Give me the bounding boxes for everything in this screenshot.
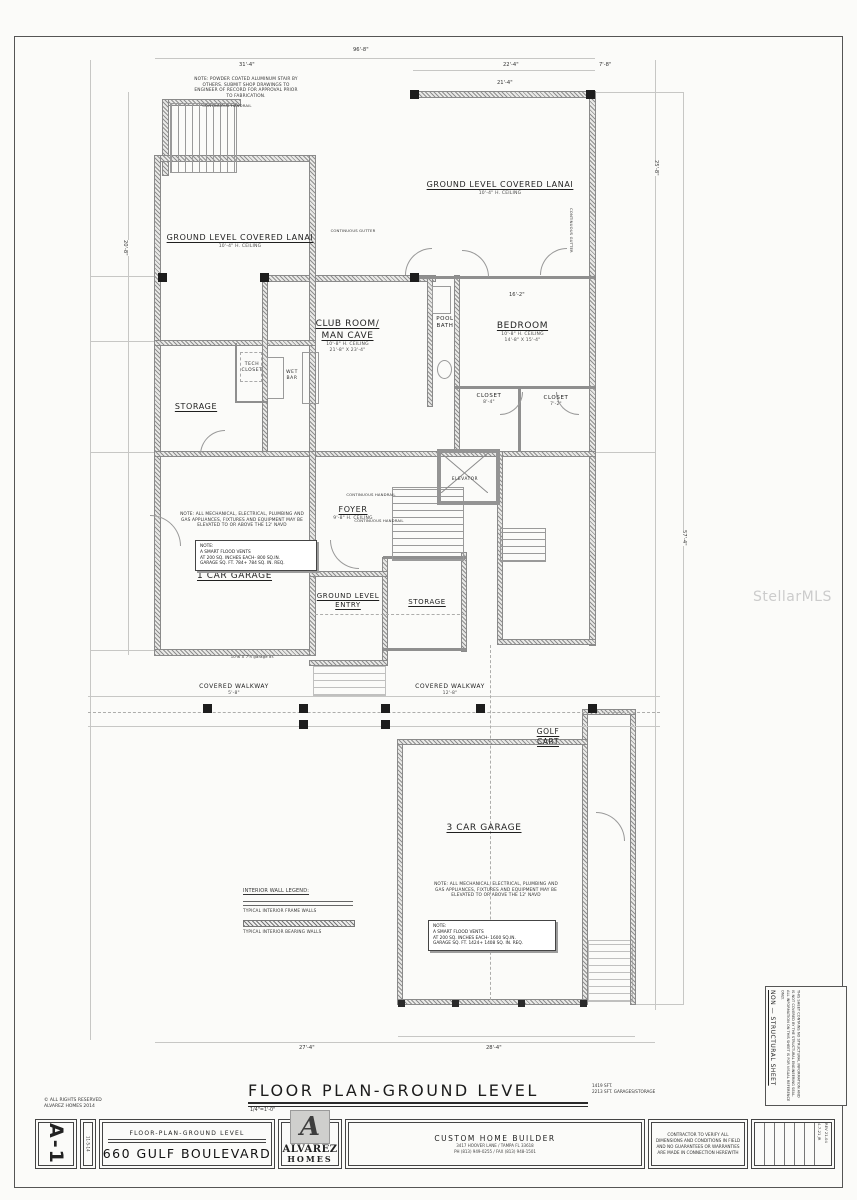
alvarez-logo: A (290, 1110, 330, 1144)
frame-wall-swatch (243, 901, 353, 906)
dimension-label: 31'-4" (238, 62, 256, 68)
non-structural-note-box: NON — STRUCTURAL SHEET THIS SHEET CONTAI… (765, 986, 847, 1106)
copyright-note: © ALL RIGHTS RESERVED ALVAREZ HOMES 2014 (44, 1098, 102, 1111)
dim-line (683, 92, 684, 1005)
dimension-label: 16'-2" (508, 292, 526, 298)
stair-treads (170, 103, 237, 173)
wall-segment (237, 401, 267, 403)
room-closet-1: CLOSET 8'-4" (465, 393, 513, 406)
room-storage-mid: STORAGE (398, 598, 456, 607)
dim-line (155, 1042, 655, 1043)
garage-door-post (518, 1000, 525, 1007)
room-bedroom: BEDROOM 10'-8" H. CEILING 14'-8" X 15'-4… (470, 320, 575, 344)
logo-cell: A ALVAREZ HOMES (278, 1119, 342, 1169)
dim-line (128, 92, 129, 655)
sheet-title: FLOOR-PLAN-GROUND LEVEL (129, 1128, 244, 1139)
column-post (381, 720, 390, 729)
wall-segment (583, 710, 587, 1004)
dimension-label: 27'-4" (298, 1045, 316, 1051)
dimension-label: 28'-4" (485, 1045, 503, 1051)
room-ground-level-entry: GROUND LEVEL ENTRY (314, 592, 382, 611)
column-post (476, 704, 485, 713)
wall-segment (310, 156, 315, 456)
date-cell: 11-5-14 (80, 1119, 96, 1169)
handrail-label: CONTINUOUS HANDRAIL (348, 519, 410, 524)
plan-scale: 1/4"=1'-0" (250, 1108, 275, 1113)
sink-fixture (432, 286, 451, 314)
stair-note: NOTE: POWDER COATED ALUMINUM STAIR BY OT… (192, 77, 300, 99)
walkway-dashed-line (88, 712, 660, 713)
garage-door-post (398, 1000, 405, 1007)
non-structural-body: THIS SHEET CONTAINS NO STRUCTURAL INFORM… (779, 990, 801, 1102)
elevator-x-mark (441, 453, 488, 493)
dim-line (90, 650, 155, 651)
garage-door-label: 10'w X 7'h garage dr. (205, 655, 300, 660)
column-post (410, 90, 419, 99)
dim-line (595, 92, 683, 93)
room-covered-walkway-right: COVERED WALKWAY 12'-8" (394, 683, 506, 697)
handrail-label: CONTINUOUS HANDRAIL (196, 104, 258, 109)
plan-area-note: 1419 SFT. 2213 SFT. GARAGES/STORAGE (592, 1083, 655, 1095)
room-elevator: ELEVATOR (440, 476, 490, 482)
dimension-label: 22'-4" (502, 62, 520, 68)
sheet-number-cell: A-1 (35, 1119, 77, 1169)
dim-line (655, 60, 656, 1010)
column-post (588, 704, 597, 713)
non-structural-title: NON — STRUCTURAL SHEET (769, 990, 776, 1102)
wall-segment (498, 640, 595, 644)
stellar-mls-watermark: StellarMLS (753, 589, 832, 605)
column-post (381, 704, 390, 713)
dim-line (155, 58, 595, 59)
revision-entry: 4-7-21 JR (817, 1123, 822, 1165)
column-post (299, 704, 308, 713)
gutter-label: CONTINUOUS GUTTER (318, 229, 388, 234)
wall-segment (413, 92, 595, 97)
title-rule (248, 1102, 588, 1104)
wall-segment (455, 386, 595, 389)
toilet-fixture (437, 360, 452, 379)
dim-line (90, 341, 155, 342)
wall-segment (398, 1000, 587, 1004)
dimension-label: 20'-8" (121, 240, 129, 256)
sheet-date: 11-5-14 (86, 1136, 91, 1152)
title-block: A-1 11-5-14 FLOOR-PLAN-GROUND LEVEL 660 … (35, 1119, 843, 1169)
walkway-line (88, 696, 660, 697)
room-pool-bath: POOL BATH (424, 316, 466, 331)
bearing-wall-swatch (243, 920, 355, 927)
column-post (260, 273, 269, 282)
column-post (203, 704, 212, 713)
revision-columns: 4-7-21 JR REV 21-04 (755, 1123, 831, 1165)
sheet-number: A-1 (45, 1123, 67, 1165)
flood-vent-note-3: NOTE: A SMART FLOOD VENTS AT 200 SQ. INC… (428, 920, 556, 951)
contractor-disclaimer: CONTRACTOR TO VERIFY ALL DIMENSIONS AND … (652, 1132, 744, 1156)
garage-door-post (452, 1000, 459, 1007)
mech-note-3: NOTE: ALL MECHANICAL, ELECTRICAL, PLUMBI… (432, 882, 560, 899)
mech-note-1: NOTE: ALL MECHANICAL, ELECTRICAL, PLUMBI… (178, 512, 306, 529)
room-tech-closet: TECH CLOSET (236, 362, 268, 374)
entry-steps (313, 666, 386, 696)
wall-segment (310, 572, 387, 576)
wall-segment (455, 276, 459, 452)
builder-phone: PH (813) 949-0255 / FAX (813) 948-1501 (454, 1149, 536, 1155)
room-storage-upper: STORAGE (160, 402, 232, 413)
builder-title: CUSTOM HOME BUILDER (434, 1134, 555, 1143)
room-1-car-garage: 1 CAR GARAGE (182, 570, 287, 582)
column-post (586, 90, 595, 99)
stair-treads (500, 528, 546, 562)
wall-segment (383, 648, 466, 651)
dim-line (398, 1036, 635, 1037)
room-3-car-garage: 3 CAR GARAGE (428, 822, 540, 834)
dimension-label: 96'-8" (352, 47, 370, 53)
wall-segment (163, 100, 168, 175)
interior-wall-legend: INTERIOR WALL LEGEND: TYPICAL INTERIOR F… (243, 888, 368, 934)
column-post (158, 273, 167, 282)
revision-entry: REV 21-04 (824, 1123, 829, 1165)
dim-line (413, 70, 595, 71)
plan-title: FLOOR PLAN-GROUND LEVEL (248, 1081, 539, 1100)
dim-line (90, 60, 91, 1040)
wall-segment (413, 276, 595, 279)
dim-line (90, 452, 155, 453)
dim-line (595, 452, 655, 453)
drawing-sheet: GROUND LEVEL COVERED LANAI 10'-4" H. CEI… (0, 0, 857, 1200)
walkway-line (88, 726, 660, 727)
room-club: CLUB ROOM/ MAN CAVE 10'-8" H. CEILING 21… (295, 318, 400, 354)
flood-vent-note-1: NOTE: A SMART FLOOD VENTS AT 200 SQ. INC… (195, 540, 317, 571)
room-covered-walkway-left: COVERED WALKWAY 5'-8" (178, 683, 290, 697)
garage-door-post (580, 1000, 587, 1007)
wall-segment (590, 92, 595, 645)
room-lanai-right: GROUND LEVEL COVERED LANAI 10'-4" H. CEI… (410, 180, 590, 197)
dim-line (90, 276, 155, 277)
brand-name-2: HOMES (287, 1155, 332, 1164)
logo-letter: A (300, 1114, 320, 1140)
title-address-cell: FLOOR-PLAN-GROUND LEVEL 660 GULF BOULEVA… (99, 1119, 275, 1169)
gutter-label: CONTINUOUS GUTTER (568, 195, 573, 265)
dashed-line (315, 614, 465, 615)
room-wet-bar: WET BAR (278, 370, 306, 382)
golf-cart-steps (588, 940, 633, 1002)
wall-segment (398, 740, 402, 1004)
sheet-border (14, 36, 843, 1188)
column-post (299, 720, 308, 729)
dim-line (635, 1004, 683, 1005)
wall-segment (462, 553, 466, 651)
disclaimer-cell: CONTRACTOR TO VERIFY ALL DIMENSIONS AND … (648, 1119, 748, 1169)
room-lanai-left: GROUND LEVEL COVERED LANAI 10'-4" H. CEI… (150, 233, 330, 250)
dimension-label: 25'-8" (652, 160, 660, 176)
dimension-label: 21'-4" (496, 80, 514, 86)
dimension-label: 7'-8" (598, 62, 612, 68)
builder-cell: CUSTOM HOME BUILDER 3417 HOOVER LANE / T… (345, 1119, 645, 1169)
room-golf-cart: GOLF CART (526, 727, 570, 747)
wall-segment (310, 661, 387, 665)
handrail-label: CONTINUOUS HANDRAIL (340, 493, 402, 498)
room-closet-2: CLOSET 7'-2" (532, 395, 580, 408)
project-address: 660 GULF BOULEVARD (103, 1143, 272, 1161)
dimension-label: 57'-4" (680, 530, 688, 546)
revision-cell: 4-7-21 JR REV 21-04 (751, 1119, 835, 1169)
title-rule (248, 1106, 588, 1107)
